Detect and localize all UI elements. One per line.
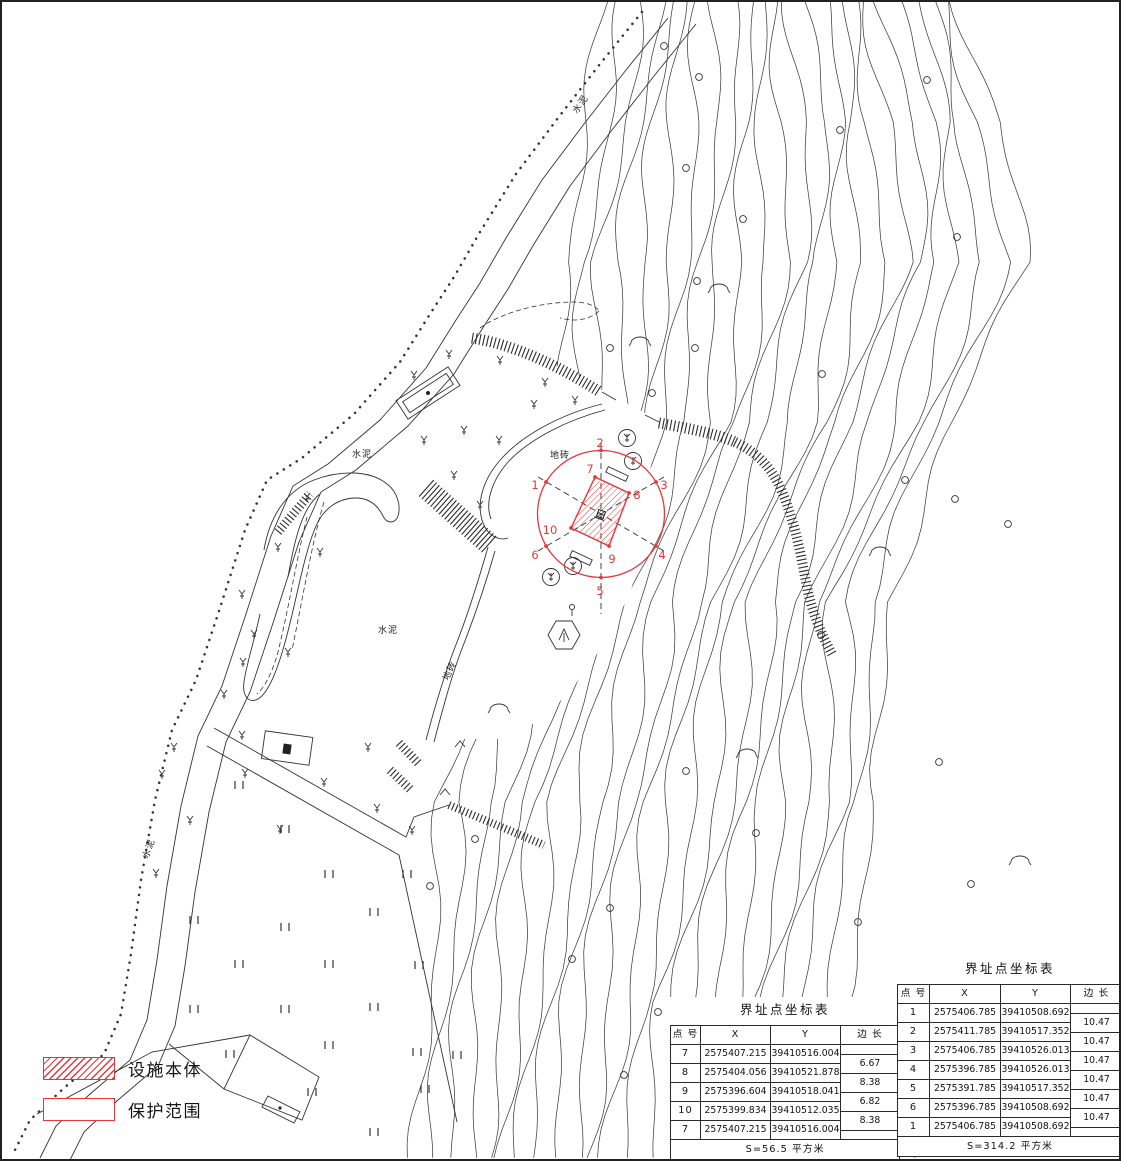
- table-cell: 2575391.785: [930, 1080, 1001, 1099]
- map-label-paving: 地砖: [550, 449, 570, 461]
- grass-icon: [325, 1041, 333, 1049]
- legend-item-protection: 保护范围: [43, 1097, 202, 1121]
- table-cell: [1071, 1128, 1121, 1138]
- table-cell: [841, 1045, 899, 1055]
- shrub-icon: [607, 345, 614, 352]
- building-small: [261, 731, 312, 765]
- table-cell: 2575396.604: [701, 1083, 771, 1102]
- flowerbed: [396, 367, 460, 419]
- table-cell: 2575404.056: [701, 1064, 771, 1083]
- shrub-icon: [661, 43, 668, 50]
- table-cell: 点 号: [898, 985, 930, 1004]
- table-cell: X: [701, 1026, 771, 1045]
- survey-point-label: 6: [531, 548, 538, 562]
- table-cell: 6: [898, 1099, 930, 1118]
- bamboo-icon: [446, 350, 452, 359]
- grass-icon: [453, 1051, 461, 1059]
- table-cell: 8.38: [841, 1074, 899, 1093]
- table-cell: 点 号: [671, 1026, 701, 1045]
- grass-icon: [325, 960, 333, 968]
- table-cell: 39410526.013: [1001, 1042, 1071, 1061]
- shrub-icon: [902, 477, 909, 484]
- table-title: 界址点坐标表: [670, 997, 900, 1025]
- mound-icon: [1009, 856, 1031, 865]
- table-cell: 39410512.035: [771, 1102, 841, 1121]
- shrub-icon: [569, 956, 576, 963]
- garden-bed: [244, 473, 399, 701]
- bamboo-icon: [451, 471, 457, 480]
- bamboo-icon: [171, 743, 177, 752]
- table-cell: 7: [671, 1045, 701, 1064]
- shrub-icon: [753, 830, 760, 837]
- table-cell: 边 长: [841, 1026, 899, 1045]
- mound-icon: [708, 284, 730, 293]
- grass-icon: [370, 908, 378, 916]
- table-cell: 4: [898, 1061, 930, 1080]
- survey-point-label: 7: [586, 462, 593, 476]
- table-cell: 2575396.785: [930, 1099, 1001, 1118]
- table-grid: 点 号XY边 长12575406.78539410508.69222575411…: [897, 984, 1121, 1157]
- grass-icon: [415, 961, 423, 969]
- shrub-icon: [472, 836, 479, 843]
- bamboo-icon: [240, 658, 246, 667]
- bamboo-icon: [317, 548, 323, 557]
- grass-icon: [403, 870, 411, 878]
- stairs-lower-1: [399, 743, 419, 764]
- table-cell: Y: [1001, 985, 1071, 1004]
- bamboo-icon: [221, 690, 227, 699]
- grass-icon: [325, 870, 333, 878]
- shrub-icon: [837, 127, 844, 134]
- bamboo-icon: [242, 769, 248, 778]
- table-cell: 8.38: [841, 1112, 899, 1131]
- bamboo-icon: [153, 869, 159, 878]
- table-cell: 6.82: [841, 1093, 899, 1112]
- table-cell: [1071, 1004, 1121, 1014]
- table-cell: X: [930, 985, 1001, 1004]
- table-cell: 10.47: [1071, 1071, 1121, 1090]
- table-cell: [841, 1131, 899, 1141]
- legend-item-facility: 设施本体: [43, 1056, 202, 1080]
- table-cell: 10.47: [1071, 1033, 1121, 1052]
- table-cell: S=314.2 平方米: [898, 1137, 1121, 1156]
- table-cell: 39410508.692: [1001, 1004, 1071, 1023]
- shrub-icon: [683, 165, 690, 172]
- table-cell: 2575406.785: [930, 1004, 1001, 1023]
- bamboo-icon: [251, 630, 257, 639]
- table-cell: 3: [898, 1042, 930, 1061]
- map-label-cement: 水泥: [140, 837, 158, 860]
- bamboo-icon: [409, 826, 415, 835]
- bamboo-icon: [239, 731, 245, 740]
- shrub-icon: [819, 371, 826, 378]
- table-cell: 2575407.215: [701, 1045, 771, 1064]
- survey-point-label: 1: [531, 478, 538, 492]
- bamboo-icon: [159, 770, 165, 779]
- contour-line: [671, 2, 846, 1158]
- table-cell: 39410508.692: [1001, 1118, 1071, 1137]
- grass-icon: [226, 1050, 234, 1058]
- contour-line: [650, 2, 830, 1158]
- bamboo-icon: [275, 543, 281, 552]
- table-cell: 1: [898, 1004, 930, 1023]
- survey-point-label: 5: [596, 584, 603, 598]
- shrub-icon: [740, 216, 747, 223]
- survey-point-label: 2: [596, 436, 603, 450]
- table-cell: 2575406.785: [930, 1042, 1001, 1061]
- coordinate-table-protection: 界址点坐标表 点 号XY边 长12575406.78539410508.6922…: [897, 956, 1121, 1157]
- table-cell: 5: [898, 1080, 930, 1099]
- shrub-icon: [952, 496, 959, 503]
- grass-icon: [281, 923, 289, 931]
- table-cell: 10.47: [1071, 1014, 1121, 1033]
- shrub-icon: [1005, 521, 1012, 528]
- table-cell: 39410516.004: [771, 1121, 841, 1140]
- table-cell: 2575406.785: [930, 1118, 1001, 1137]
- shrub-icon: [683, 768, 690, 775]
- bamboo-icon: [187, 816, 193, 825]
- grass-icon: [413, 1048, 421, 1056]
- legend-label: 设施本体: [128, 1056, 202, 1081]
- grass-icon: [190, 1005, 198, 1013]
- survey-point-label: 9: [608, 552, 615, 566]
- protection-outline-swatch: [43, 1098, 115, 1121]
- table-cell: 39410526.013: [1001, 1061, 1071, 1080]
- map-label-cement: 水泥: [378, 624, 398, 636]
- stairs-lower-2: [390, 770, 412, 791]
- mound-icon: [629, 337, 651, 346]
- paved-area-dashed: [480, 302, 599, 328]
- table-cell: 2575411.785: [930, 1023, 1001, 1042]
- bamboo-icon: [374, 804, 380, 813]
- slope-chevron-icon: [440, 789, 450, 795]
- shrub-icon: [936, 759, 943, 766]
- walkway: [207, 728, 457, 1122]
- bamboo-icon: [277, 825, 283, 834]
- table-cell: 39410521.878: [771, 1064, 841, 1083]
- table-cell: 8: [671, 1064, 701, 1083]
- facility-hatch-swatch: [43, 1057, 115, 1080]
- table-cell: 1: [898, 1118, 930, 1137]
- table-cell: 边 长: [1071, 985, 1121, 1004]
- legend-label: 保护范围: [128, 1097, 202, 1122]
- coordinate-table-facility: 界址点坐标表 点 号XY边 长72575407.21539410516.0048…: [670, 997, 900, 1160]
- bamboo-icon: [321, 778, 327, 787]
- table-cell: 7: [671, 1121, 701, 1140]
- grass-icon: [281, 1005, 289, 1013]
- map-label-cement: 水泥: [352, 448, 372, 460]
- shrub-icon: [968, 881, 975, 888]
- shrub-icon: [694, 278, 701, 285]
- site-plan-sheet: 水泥 水泥 水泥 水泥 地砖 地砖 1 2 3 4 5 6 7 8 9 10: [0, 0, 1121, 1161]
- table-grid: 点 号XY边 长72575407.21539410516.00482575404…: [670, 1025, 900, 1160]
- mound-icon: [869, 547, 891, 556]
- wall-start: [659, 423, 735, 442]
- survey-point-label: 4: [658, 548, 665, 562]
- table-cell: 39410517.352: [1001, 1023, 1071, 1042]
- contour-line: [715, 2, 885, 1158]
- table-cell: 10.47: [1071, 1109, 1121, 1128]
- bamboo-icon: [239, 590, 245, 599]
- legend: 设施本体 保护范围: [43, 1056, 202, 1138]
- table-cell: 39410516.004: [771, 1045, 841, 1064]
- table-cell: 39410518.041: [771, 1083, 841, 1102]
- bamboo-icon: [285, 648, 291, 657]
- survey-point-label: 10: [543, 523, 558, 537]
- table-cell: 2: [898, 1023, 930, 1042]
- bamboo-icon: [421, 436, 427, 445]
- bamboo-icon: [461, 426, 467, 435]
- table-cell: 2575396.785: [930, 1061, 1001, 1080]
- table-cell: 39410508.692: [1001, 1099, 1071, 1118]
- bamboo-icon: [365, 743, 371, 752]
- shrub-icon: [655, 1009, 662, 1016]
- grass-icon: [235, 781, 243, 789]
- contour-line: [743, 2, 914, 1158]
- shrub-icon: [427, 883, 434, 890]
- table-cell: 2575399.834: [701, 1102, 771, 1121]
- shrub-icon: [621, 1072, 628, 1079]
- table-cell: 10.47: [1071, 1090, 1121, 1109]
- shrub-icon: [924, 77, 931, 84]
- survey-point-label: 8: [633, 488, 640, 502]
- table-cell: 9: [671, 1083, 701, 1102]
- table-cell: S=56.5 平方米: [671, 1140, 899, 1159]
- grass-icon: [370, 1003, 378, 1011]
- table-cell: Y: [771, 1026, 841, 1045]
- grass-icon: [370, 1128, 378, 1136]
- shrub-icon: [692, 345, 699, 352]
- grass-icon: [235, 960, 243, 968]
- table-cell: 2575407.215: [701, 1121, 771, 1140]
- shrub-icon: [649, 390, 656, 397]
- table-cell: 10.47: [1071, 1052, 1121, 1071]
- table-title: 界址点坐标表: [897, 956, 1121, 984]
- shrub-icon: [696, 74, 703, 81]
- table-cell: 39410517.352: [1001, 1080, 1071, 1099]
- survey-point-label: 3: [660, 478, 667, 492]
- map-label-cement: 水泥: [570, 92, 591, 115]
- table-cell: 10: [671, 1102, 701, 1121]
- table-cell: 6.67: [841, 1055, 899, 1074]
